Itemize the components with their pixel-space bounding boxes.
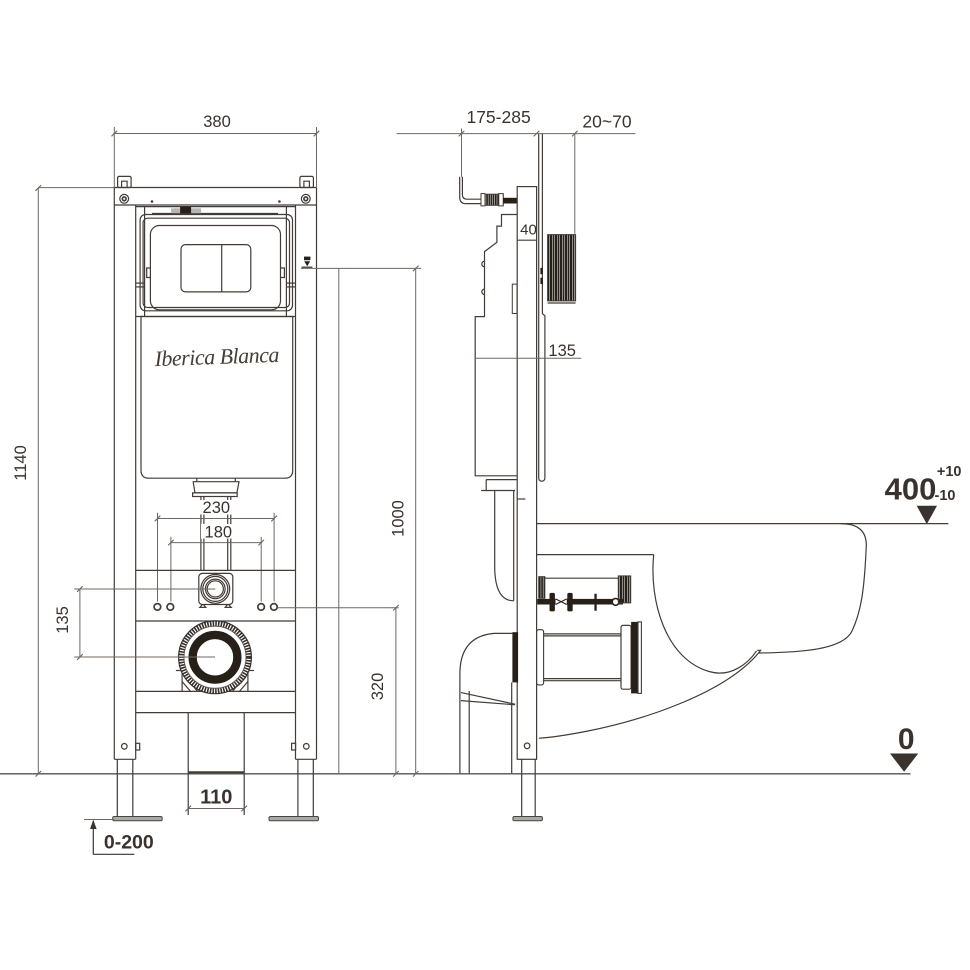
svg-text:135: 135 <box>54 606 72 634</box>
svg-text:110: 110 <box>200 787 232 809</box>
svg-text:135: 135 <box>548 342 576 360</box>
svg-text:1140: 1140 <box>12 445 30 480</box>
svg-text:40: 40 <box>520 222 537 239</box>
svg-text:175-285: 175-285 <box>466 107 530 127</box>
svg-text:0-200: 0-200 <box>104 831 154 853</box>
svg-text:1000: 1000 <box>390 500 408 537</box>
svg-text:380: 380 <box>203 113 231 131</box>
svg-text:180: 180 <box>205 523 233 541</box>
svg-text:20~70: 20~70 <box>582 112 631 132</box>
svg-text:Iberica Blanca: Iberica Blanca <box>153 342 280 371</box>
svg-text:0: 0 <box>898 723 915 756</box>
svg-text:400: 400 <box>885 472 937 507</box>
svg-text:-10: -10 <box>935 488 956 504</box>
svg-text:+10: +10 <box>937 464 962 480</box>
svg-text:320: 320 <box>369 673 387 701</box>
svg-text:230: 230 <box>203 499 231 517</box>
